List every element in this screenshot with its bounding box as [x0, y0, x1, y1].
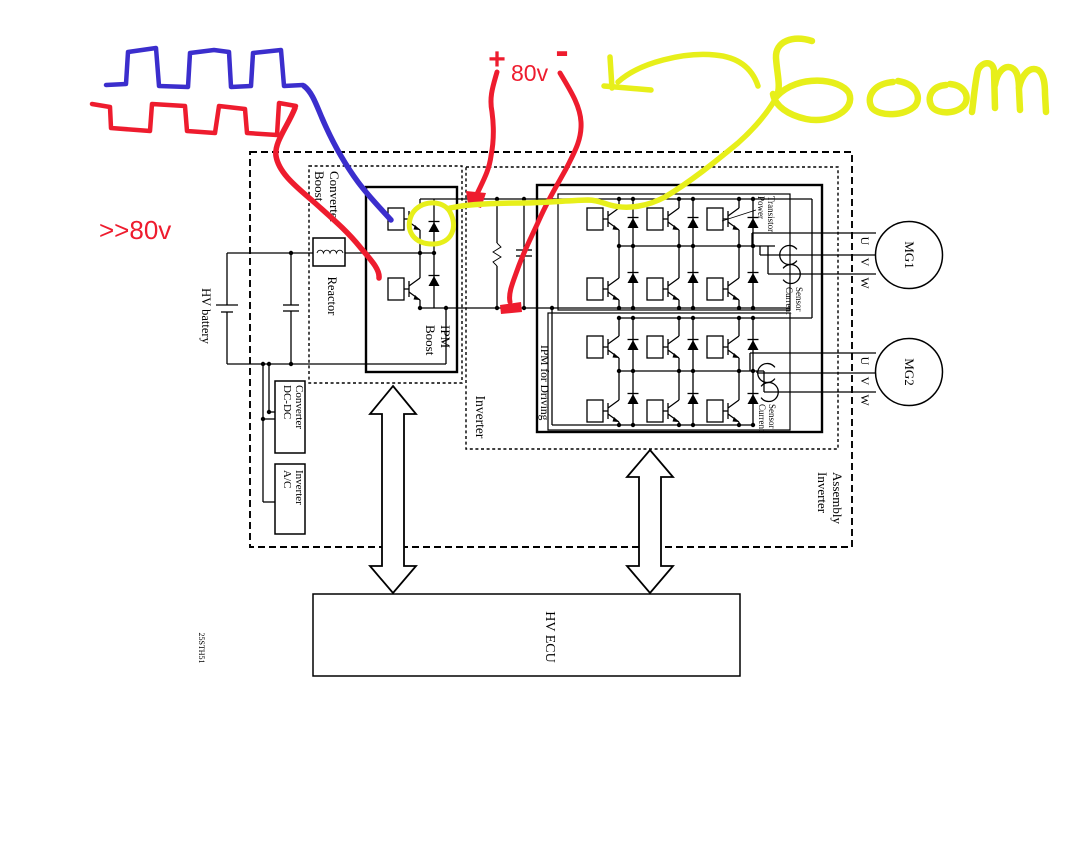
mg2-phase-v-label: V — [858, 377, 872, 386]
yellow-highlight-circle — [409, 203, 453, 244]
hv-battery-label: HV battery — [199, 288, 213, 344]
dcdc-ac-branch: DC-DC Converter A/C Inverter — [263, 364, 305, 534]
doc-number: 25STH51 — [197, 632, 206, 663]
mg1-label: MG1 — [902, 241, 917, 268]
mg2-phase-w-label: W — [858, 394, 872, 406]
red-probe-positive-wire — [477, 72, 497, 194]
red-pwm-waveform — [92, 103, 296, 135]
hv-ecu-label: HV ECU — [542, 611, 557, 662]
scanned-inverter-diagram: Inverter Assembly HV battery DC-DC Conve… — [0, 0, 1083, 868]
wave-voltage-note: >>80v — [99, 215, 171, 245]
ac-label-line2: Inverter — [293, 470, 305, 505]
resistor-icon — [493, 243, 501, 266]
power-transistor-leader-line — [722, 210, 756, 221]
mg1-bridge-wires — [619, 199, 775, 308]
reactor: Reactor — [313, 238, 345, 316]
current-sensor2-label-line1: Current — [757, 404, 767, 432]
mg2-phase-u-label: U — [858, 357, 872, 366]
bus-minus-label: - — [555, 29, 568, 73]
red-probe-negative-wire — [510, 73, 582, 302]
ipm-for-driving-label: IPM for Driving — [538, 345, 550, 421]
inverter-ecu-arrow — [627, 450, 673, 593]
diagram-canvas: Inverter Assembly HV battery DC-DC Conve… — [0, 0, 1083, 868]
reactor-coil-icon — [317, 250, 343, 253]
red-probe-negative-tip — [500, 302, 522, 314]
reactor-label: Reactor — [325, 277, 339, 317]
mg2-label: MG2 — [902, 358, 917, 385]
yellow-arrowhead — [610, 57, 612, 88]
bus-voltage-label: 80v — [511, 60, 549, 86]
mg1-phase-w-label: W — [858, 277, 872, 289]
mg2-motor: MG2 — [876, 339, 943, 406]
current-sensor1-label-line1: Current — [784, 287, 794, 315]
current-sensor1-label-line2: Sensor — [794, 287, 804, 312]
dcdc-label-line2: Converter — [293, 385, 305, 429]
ecu-data-arrows — [370, 386, 673, 593]
power-transistor-label-line1: Power — [756, 196, 766, 219]
current-sensor2-label-line2: Sensor — [767, 404, 777, 429]
boost-converter-label-line1: Boost — [312, 171, 327, 202]
mg2-phase-outputs: Current Sensor U V W — [750, 353, 876, 432]
mg1-motor: MG1 — [876, 222, 943, 289]
dcdc-label-line1: DC-DC — [281, 385, 293, 419]
boost-ecu-arrow — [370, 386, 416, 593]
ac-label-line1: A/C — [281, 470, 293, 488]
mg1-phase-outputs: Current Sensor U V W — [752, 233, 876, 315]
power-transistor-label-line2: Transistor — [766, 196, 776, 232]
boost-ipm-label-line1: Boost — [423, 325, 438, 356]
yellow-arrow-arc — [618, 54, 758, 86]
mg1-phase-v-label: V — [858, 258, 872, 267]
hv-ecu: HV ECU — [313, 594, 740, 676]
inverter-assembly-label-line2: Assembly — [830, 472, 845, 525]
hv-battery: HV battery — [199, 253, 446, 364]
inverter-assembly-label-line1: Inverter — [815, 472, 830, 514]
mg1-phase-u-label: U — [858, 237, 872, 246]
blue-pwm-waveform — [106, 48, 303, 87]
filter-capacitor-battery-side — [283, 253, 299, 364]
inverter-label: Inverter — [473, 396, 488, 439]
yellow-trace-to-diode — [450, 94, 778, 208]
